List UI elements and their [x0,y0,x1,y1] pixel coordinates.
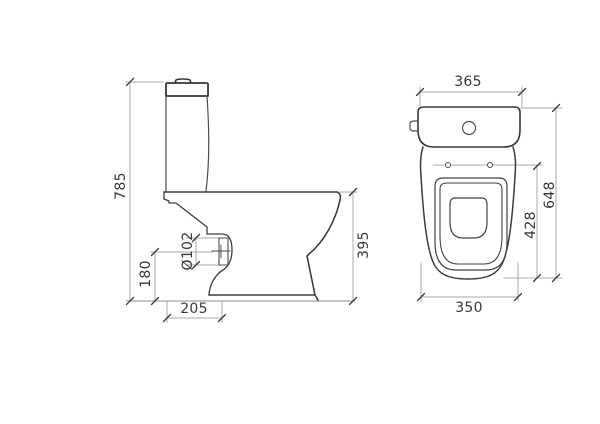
dim-label-rim-height: 395 [357,231,371,259]
dim-label-overall-height: 785 [114,172,128,200]
side-view [126,79,357,323]
side-view-tick-marks [127,79,357,322]
cistern-lid-outline [166,83,208,96]
dim-label-outlet-setout: 205 [180,302,208,316]
outlet-center-cross [212,245,230,258]
seat-hinge-right [488,163,493,168]
technical-drawing-canvas: 785 180 Ø102 205 395 365 648 428 350 [0,0,600,424]
dim-label-cistern-width: 365 [454,75,482,89]
pedestal-back-outline [164,192,207,234]
top-view-dimension-lines [420,87,562,301]
dim-label-hinge-to-front: 428 [524,211,538,239]
dim-label-overall-depth: 648 [543,181,557,209]
bowl-opening-outline [450,198,487,238]
toilet-dimension-drawing [0,0,600,424]
cistern-side-outline [166,96,209,191]
dim-label-bowl-width: 350 [455,301,483,315]
dim-label-outlet-diameter: Ø102 [181,232,195,271]
side-view-dimension-lines [126,82,357,322]
flush-button-icon [463,122,476,135]
supply-tab [410,121,418,131]
seat-outer-ring [435,178,507,270]
top-view-tick-marks [417,89,560,301]
top-view [410,87,562,301]
seat-hinge-left [446,163,451,168]
dim-label-outlet-center-height: 180 [139,260,153,288]
seat-inner-ring [440,183,502,264]
cistern-top-outline [418,107,520,147]
